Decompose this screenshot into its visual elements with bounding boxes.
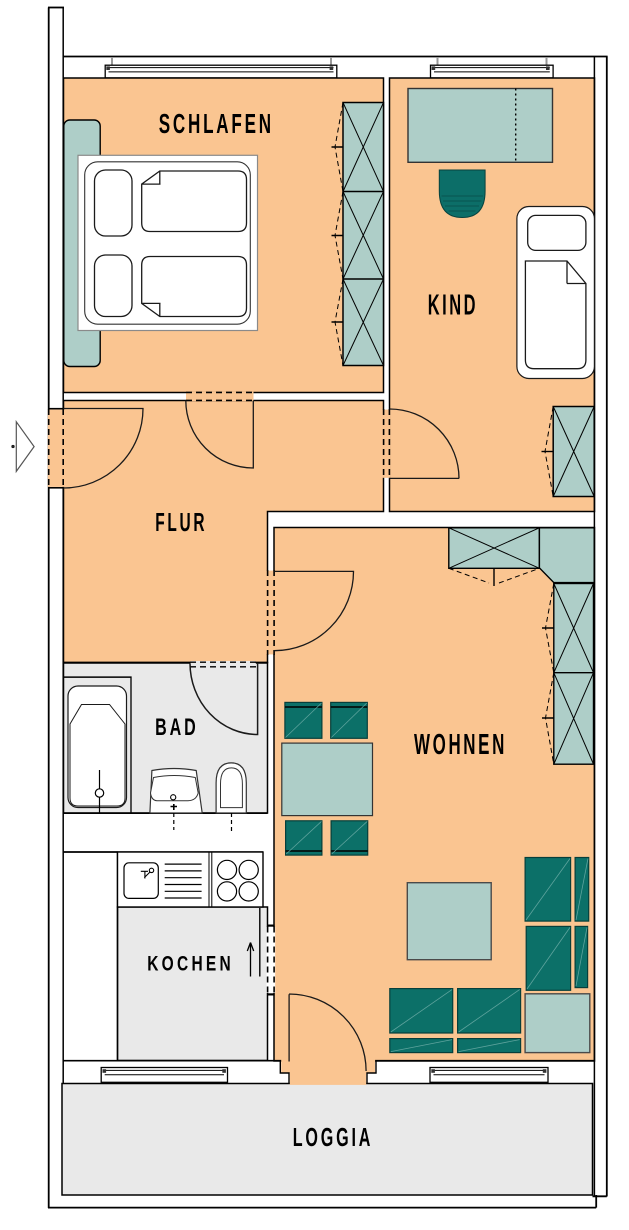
svg-text:SCHLAFEN: SCHLAFEN <box>159 108 274 139</box>
svg-text:LOGGIA: LOGGIA <box>293 1124 374 1152</box>
svg-text:WOHNEN: WOHNEN <box>414 729 507 761</box>
svg-text:KIND: KIND <box>428 289 478 321</box>
svg-text:FLUR: FLUR <box>155 509 207 537</box>
svg-text:BAD: BAD <box>155 714 199 741</box>
svg-text:KOCHEN: KOCHEN <box>147 951 234 975</box>
